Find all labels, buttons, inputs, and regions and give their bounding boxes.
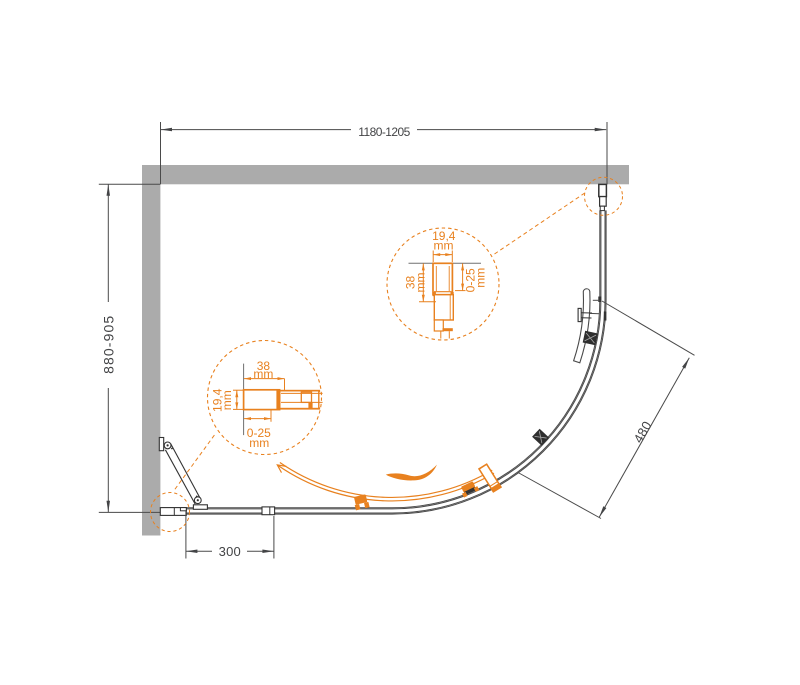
svg-text:mm: mm — [220, 390, 234, 410]
svg-text:mm: mm — [434, 239, 454, 253]
svg-text:mm: mm — [413, 273, 427, 293]
svg-text:mm: mm — [473, 268, 487, 288]
svg-text:480: 480 — [630, 418, 654, 445]
svg-text:mm: mm — [249, 436, 269, 450]
svg-text:1180-1205: 1180-1205 — [358, 125, 410, 139]
svg-text:300: 300 — [219, 544, 241, 559]
svg-text:880-905: 880-905 — [100, 315, 116, 374]
svg-text:mm: mm — [253, 367, 273, 381]
